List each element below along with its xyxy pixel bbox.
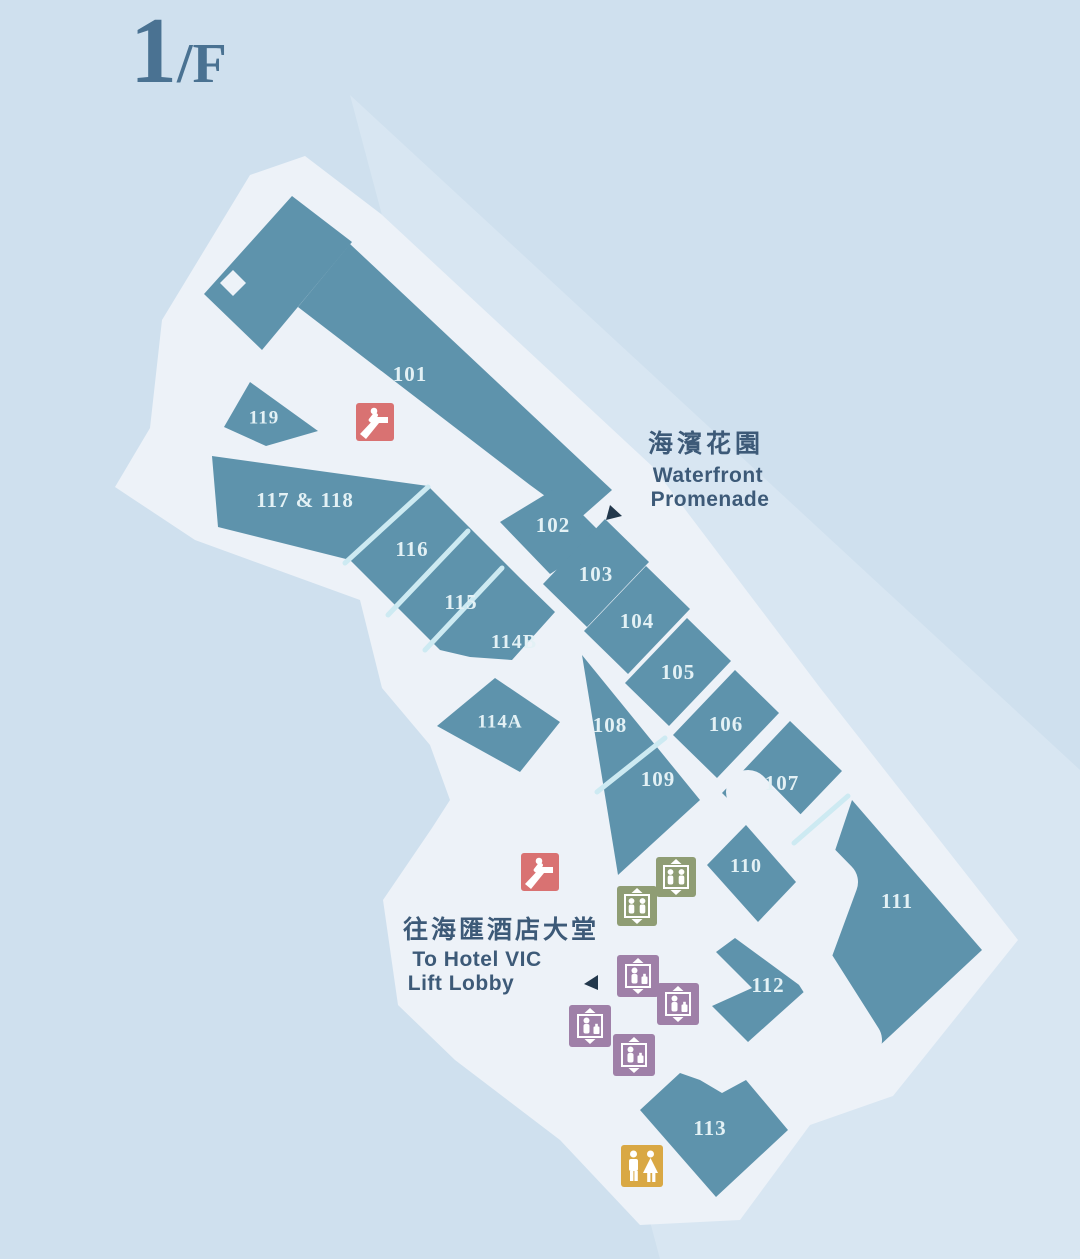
shop-label-102: 102 <box>536 513 571 537</box>
shop-label-114A: 114A <box>477 712 522 733</box>
shop-label-115: 115 <box>444 590 477 614</box>
floor-title-suffix: /F <box>177 33 227 95</box>
hotel-label-en1: To Hotel VIC <box>412 948 541 971</box>
hotel-label-zh: 往海匯酒店大堂 <box>403 915 599 944</box>
hotel-lift-icon <box>617 955 659 997</box>
toilet-icon-bg <box>621 1145 663 1187</box>
hotel-lift-icon <box>657 983 699 1025</box>
hotel-lift-icon <box>613 1034 655 1076</box>
shop-label-119: 119 <box>249 408 279 429</box>
shop-label-108: 108 <box>593 713 628 737</box>
shop-label-114B: 114B <box>491 631 537 653</box>
hotel-lift-icon <box>569 1005 611 1047</box>
escalator-icon <box>356 403 394 441</box>
waterfront-label-en2: Promenade <box>651 488 770 511</box>
shop-label-111: 111 <box>881 889 913 913</box>
shop-label-110: 110 <box>730 855 762 877</box>
shop-label-105: 105 <box>661 660 696 684</box>
waterfront-label-en1: Waterfront <box>653 464 763 487</box>
floor-title: 1/F <box>130 4 227 98</box>
shop-label-117118: 117 & 118 <box>256 488 354 512</box>
waterfront-label-zh: 海濱花園 <box>648 429 764 458</box>
floor-plan-map: 1011021031041051061071081091101111121131… <box>0 0 1080 1259</box>
shop-label-109: 109 <box>641 767 676 791</box>
shop-label-113: 113 <box>693 1116 726 1140</box>
shop-label-106: 106 <box>709 712 744 736</box>
floor-title-number: 1 <box>130 0 177 103</box>
shop-label-103: 103 <box>579 562 614 586</box>
shop-label-112: 112 <box>751 973 784 997</box>
escalator-icon <box>521 853 559 891</box>
lift-icon <box>617 886 657 926</box>
shop-label-116: 116 <box>395 537 428 561</box>
toilet-icon <box>621 1145 663 1187</box>
lift-icon <box>656 857 696 897</box>
shop-label-107: 107 <box>765 771 800 795</box>
shop-label-101: 101 <box>393 362 428 386</box>
floor-plan-page: 1011021031041051061071081091101111121131… <box>0 0 1080 1259</box>
hotel-label-en2: Lift Lobby <box>408 972 514 995</box>
shop-label-104: 104 <box>620 609 655 633</box>
